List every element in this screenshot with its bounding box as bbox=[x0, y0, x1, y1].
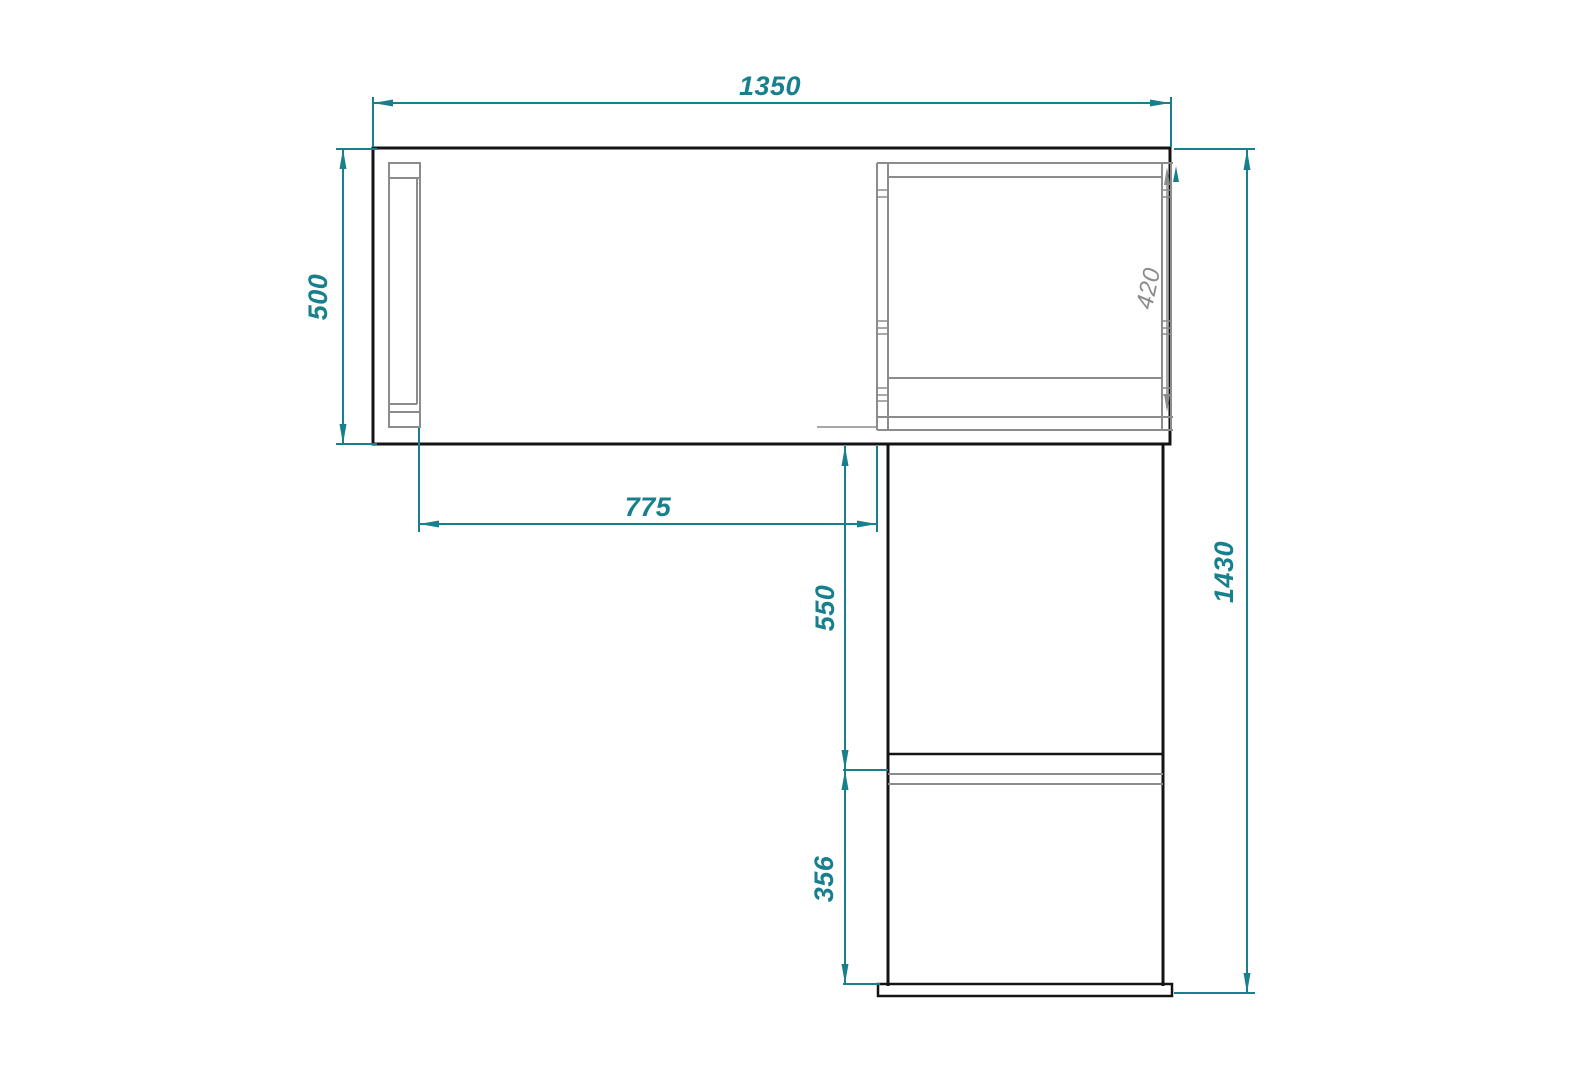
dim-label-1430: 1430 bbox=[1209, 541, 1239, 603]
right-inner-box: 420 bbox=[817, 163, 1173, 430]
arrowhead-down bbox=[1244, 973, 1251, 993]
dim-label-420: 420 bbox=[1131, 265, 1166, 311]
arrowhead-up bbox=[842, 446, 849, 466]
arrowhead-down bbox=[842, 750, 849, 770]
dim-label-356: 356 bbox=[809, 855, 839, 902]
upper-cabinet-outline bbox=[373, 148, 1170, 444]
drawing-canvas: 420 1350 500 775 550 bbox=[0, 0, 1577, 1080]
arrowhead-right bbox=[1150, 100, 1170, 107]
arrowhead-corner-up bbox=[1173, 166, 1179, 182]
dim-label-550: 550 bbox=[810, 585, 840, 632]
dim-label-775: 775 bbox=[625, 492, 672, 522]
upper-cabinet bbox=[373, 148, 1170, 444]
arrowhead-down bbox=[340, 424, 347, 444]
arrowhead-left bbox=[419, 521, 439, 528]
technical-drawing: 420 1350 500 775 550 bbox=[0, 0, 1577, 1080]
arrowhead-up bbox=[340, 149, 347, 169]
left-side-panel bbox=[389, 163, 420, 427]
arrowhead-right bbox=[857, 521, 877, 528]
dimension-overall-width: 1350 bbox=[373, 71, 1171, 147]
side-panel-outline bbox=[389, 163, 420, 427]
pedestal-plinth bbox=[878, 984, 1172, 996]
dimension-bottom-section-height: 356 bbox=[809, 770, 880, 984]
pedestal-cabinet bbox=[878, 444, 1172, 996]
hinge-marks-left bbox=[877, 190, 888, 401]
dim-label-1350: 1350 bbox=[739, 71, 801, 101]
arrowhead-left bbox=[373, 100, 393, 107]
dim-label-500: 500 bbox=[303, 274, 333, 321]
arrowhead-up bbox=[842, 770, 849, 790]
dimension-inner-opening-height: 420 bbox=[1131, 167, 1170, 412]
arrowhead-down bbox=[842, 964, 849, 984]
dimension-side-height: 500 bbox=[303, 149, 377, 444]
arrowhead-up bbox=[1244, 150, 1251, 170]
dimension-overall-height: 1430 bbox=[1173, 149, 1255, 993]
